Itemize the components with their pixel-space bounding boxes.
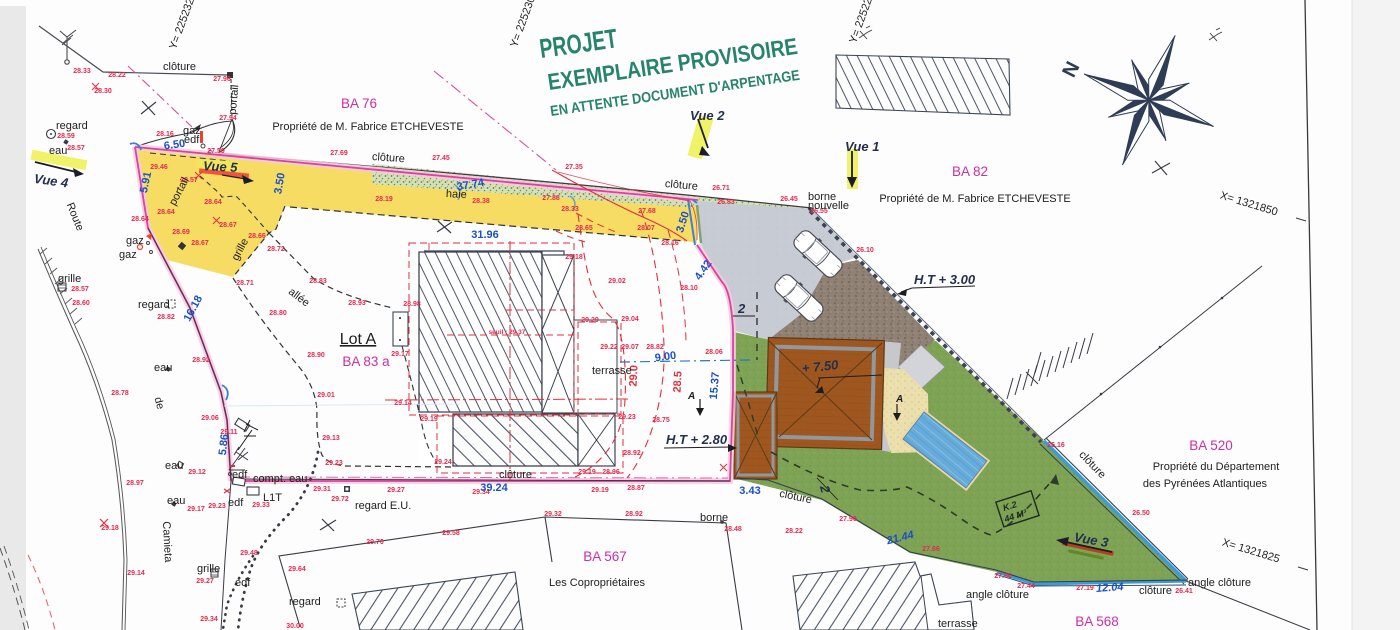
- svg-text:28.59: 28.59: [57, 133, 75, 140]
- svg-text:29.22: 29.22: [600, 344, 618, 351]
- svg-text:H.T + 2.80: H.T + 2.80: [666, 432, 728, 447]
- svg-text:28.06: 28.06: [705, 349, 723, 356]
- svg-text:28.64: 28.64: [131, 216, 149, 223]
- svg-text:29.18: 29.18: [565, 254, 583, 261]
- svg-text:28.22: 28.22: [785, 528, 803, 535]
- svg-text:28.96: 28.96: [602, 469, 620, 476]
- svg-text:27.35: 27.35: [565, 164, 583, 171]
- svg-text:H.T + 3.00: H.T + 3.00: [914, 272, 976, 287]
- svg-text:29.17: 29.17: [187, 506, 205, 513]
- svg-text:28.93: 28.93: [348, 300, 366, 307]
- svg-text:29.70: 29.70: [366, 539, 384, 546]
- svg-text:28.07: 28.07: [637, 225, 655, 232]
- svg-text:26.16: 26.16: [1047, 442, 1065, 449]
- svg-text:28.83: 28.83: [309, 278, 327, 285]
- svg-text:regard E.U.: regard E.U.: [355, 500, 411, 512]
- svg-text:29.64: 29.64: [288, 566, 306, 573]
- svg-text:28.87: 28.87: [627, 485, 645, 492]
- svg-text:27.69: 27.69: [330, 150, 348, 157]
- svg-text:27.94: 27.94: [219, 115, 237, 122]
- svg-text:edf: edf: [228, 497, 244, 509]
- svg-text:angle clôture: angle clôture: [1188, 577, 1251, 589]
- svg-text:28.92: 28.92: [192, 357, 210, 364]
- svg-text:28.16: 28.16: [661, 240, 679, 247]
- svg-text:29.34: 29.34: [200, 616, 218, 623]
- svg-text:28.80: 28.80: [269, 310, 287, 317]
- svg-text:29.18: 29.18: [101, 525, 119, 532]
- svg-text:BA 567: BA 567: [583, 549, 627, 564]
- svg-text:A: A: [687, 391, 695, 402]
- svg-text:28.5: 28.5: [671, 371, 684, 393]
- svg-text:28.66: 28.66: [248, 233, 266, 240]
- svg-text:grille: grille: [197, 563, 220, 575]
- svg-text:29.02: 29.02: [608, 278, 626, 285]
- svg-text:28.19: 28.19: [375, 196, 393, 203]
- svg-text:29.23: 29.23: [618, 414, 636, 421]
- svg-text:28.67: 28.67: [219, 222, 237, 229]
- svg-text:29.27: 29.27: [387, 487, 405, 494]
- svg-text:29.04: 29.04: [621, 316, 639, 323]
- svg-text:BA 76: BA 76: [341, 96, 377, 111]
- svg-text:Lot A: Lot A: [340, 331, 377, 348]
- svg-text:L1T: L1T: [263, 492, 282, 504]
- svg-text:27.90: 27.90: [839, 516, 857, 523]
- svg-text:29.27: 29.27: [196, 578, 214, 585]
- svg-text:27.60: 27.60: [994, 573, 1012, 580]
- svg-text:eau: eau: [154, 362, 172, 374]
- svg-text:28.22: 28.22: [108, 72, 126, 79]
- svg-text:29.31: 29.31: [313, 486, 331, 493]
- svg-text:26.50: 26.50: [1132, 510, 1150, 517]
- svg-text:clôture: clôture: [372, 151, 406, 165]
- svg-text:nouvelle: nouvelle: [808, 200, 849, 212]
- svg-text:39.24: 39.24: [480, 482, 508, 494]
- svg-text:Propriété de M. Fabrice ETCHEV: Propriété de M. Fabrice ETCHEVESTE: [272, 121, 463, 133]
- svg-text:Propriété du Département: Propriété du Département: [1153, 461, 1280, 473]
- svg-text:29.17: 29.17: [391, 351, 409, 358]
- svg-text:regard: regard: [56, 120, 88, 132]
- svg-text:edf: edf: [235, 577, 251, 589]
- svg-text:29.07: 29.07: [621, 344, 639, 351]
- svg-text:29.24: 29.24: [434, 459, 452, 466]
- svg-text:Vue 1: Vue 1: [845, 139, 879, 154]
- svg-text:27.45: 27.45: [432, 155, 450, 162]
- svg-text:27.96: 27.96: [213, 76, 231, 83]
- svg-text:28.72: 28.72: [267, 246, 285, 253]
- svg-text:regard: regard: [289, 596, 321, 608]
- svg-text:26.83: 26.83: [717, 199, 735, 206]
- svg-text:28.92: 28.92: [623, 450, 641, 457]
- svg-text:BA 82: BA 82: [952, 164, 988, 179]
- svg-text:29.14: 29.14: [394, 400, 412, 407]
- svg-text:gaz: gaz: [126, 235, 144, 247]
- svg-text:28.33: 28.33: [561, 206, 579, 213]
- svg-text:edf: edf: [232, 469, 248, 481]
- svg-text:28.71: 28.71: [236, 280, 254, 287]
- svg-text:28.65: 28.65: [575, 225, 593, 232]
- svg-text:29.19: 29.19: [578, 469, 596, 476]
- svg-text:regard: regard: [138, 299, 170, 311]
- svg-text:28.67: 28.67: [191, 240, 209, 247]
- svg-text:haie: haie: [446, 188, 467, 201]
- svg-text:29.19: 29.19: [420, 416, 438, 423]
- svg-text:28.82: 28.82: [157, 314, 175, 321]
- svg-text:29.58: 29.58: [442, 530, 460, 537]
- svg-text:28.82: 28.82: [646, 344, 664, 351]
- svg-text:26.45: 26.45: [780, 196, 798, 203]
- svg-text:29.32: 29.32: [544, 511, 562, 518]
- svg-text:BA 568: BA 568: [1075, 614, 1119, 629]
- svg-text:Vue 5: Vue 5: [203, 158, 239, 175]
- svg-text:28.10: 28.10: [680, 285, 698, 292]
- svg-text:clôture: clôture: [1139, 585, 1172, 597]
- svg-text:eau: eau: [165, 460, 183, 472]
- svg-text:26.10: 26.10: [856, 247, 874, 254]
- svg-text:29.19: 29.19: [591, 487, 609, 494]
- svg-text:27.88: 27.88: [542, 195, 560, 202]
- svg-text:des Pyrénées Atlantiques: des Pyrénées Atlantiques: [1143, 478, 1268, 490]
- svg-text:Vue 2: Vue 2: [690, 108, 725, 123]
- svg-text:clôture: clôture: [163, 61, 196, 73]
- svg-text:29.72: 29.72: [331, 496, 349, 503]
- svg-text:28.78: 28.78: [111, 390, 129, 397]
- svg-text:terrasse: terrasse: [938, 618, 978, 630]
- svg-text:26.41: 26.41: [1175, 588, 1193, 595]
- svg-text:eau: eau: [167, 495, 185, 507]
- svg-text:29.01: 29.01: [317, 392, 335, 399]
- svg-text:28.98: 28.98: [403, 301, 421, 308]
- svg-text:angle clôture: angle clôture: [966, 589, 1029, 601]
- svg-text:A: A: [895, 394, 903, 405]
- svg-text:29.13: 29.13: [322, 435, 340, 442]
- svg-text:12.04: 12.04: [1096, 581, 1124, 595]
- svg-text:Propriété de M. Fabrice ETCHEV: Propriété de M. Fabrice ETCHEVESTE: [879, 193, 1070, 205]
- svg-text:27.68: 27.68: [638, 208, 656, 215]
- svg-text:28.60: 28.60: [72, 300, 90, 307]
- svg-text:seuil : 29.37: seuil : 29.37: [489, 329, 526, 336]
- svg-text:clôture: clôture: [499, 469, 532, 481]
- svg-text:gaz: gaz: [119, 249, 137, 261]
- svg-text:3.43: 3.43: [739, 485, 760, 497]
- svg-text:29.23: 29.23: [208, 503, 226, 510]
- svg-text:29.06: 29.06: [201, 415, 219, 422]
- svg-text:28.57: 28.57: [67, 145, 85, 152]
- svg-text:29.46: 29.46: [150, 164, 168, 171]
- svg-text:2: 2: [737, 301, 746, 316]
- svg-text:eau: eau: [49, 145, 67, 157]
- svg-text:BA 83 a: BA 83 a: [342, 354, 390, 369]
- svg-text:28.16: 28.16: [156, 131, 174, 138]
- svg-text:27.66: 27.66: [922, 546, 940, 553]
- svg-text:28.38: 28.38: [472, 198, 490, 205]
- svg-text:28.48: 28.48: [724, 526, 742, 533]
- svg-text:29.23: 29.23: [325, 460, 343, 467]
- svg-text:terrasse: terrasse: [592, 365, 632, 377]
- svg-text:28.30: 28.30: [94, 88, 112, 95]
- svg-text:29.29: 29.29: [581, 317, 599, 324]
- svg-text:28.64: 28.64: [157, 209, 175, 216]
- svg-text:28.92: 28.92: [625, 511, 643, 518]
- svg-text:grille: grille: [58, 273, 81, 285]
- svg-text:28.69: 28.69: [172, 229, 190, 236]
- svg-text:28.33: 28.33: [73, 68, 91, 75]
- svg-text:29.12: 29.12: [188, 469, 206, 476]
- svg-text:28.90: 28.90: [307, 352, 325, 359]
- svg-text:29.14: 29.14: [127, 570, 145, 577]
- svg-text:BA 520: BA 520: [1189, 438, 1233, 453]
- svg-text:28.97: 28.97: [126, 480, 144, 487]
- svg-text:29.48: 29.48: [240, 550, 258, 557]
- svg-text:28.57: 28.57: [71, 286, 89, 293]
- svg-text:borne: borne: [700, 512, 728, 524]
- svg-text:27.19: 27.19: [1076, 585, 1094, 592]
- svg-text:30.00: 30.00: [286, 623, 304, 630]
- svg-text:26.71: 26.71: [712, 185, 730, 192]
- svg-text:15.37: 15.37: [708, 372, 722, 400]
- svg-text:compt. eau: compt. eau: [253, 473, 307, 485]
- svg-text:edf: edf: [184, 134, 200, 146]
- svg-text:28.75: 28.75: [652, 417, 670, 424]
- svg-text:Camieta: Camieta: [160, 521, 174, 563]
- svg-text:28.64: 28.64: [204, 199, 222, 206]
- svg-text:Les Copropriétaires: Les Copropriétaires: [549, 577, 645, 589]
- svg-text:31.96: 31.96: [471, 229, 499, 241]
- svg-text:27.59: 27.59: [207, 148, 225, 155]
